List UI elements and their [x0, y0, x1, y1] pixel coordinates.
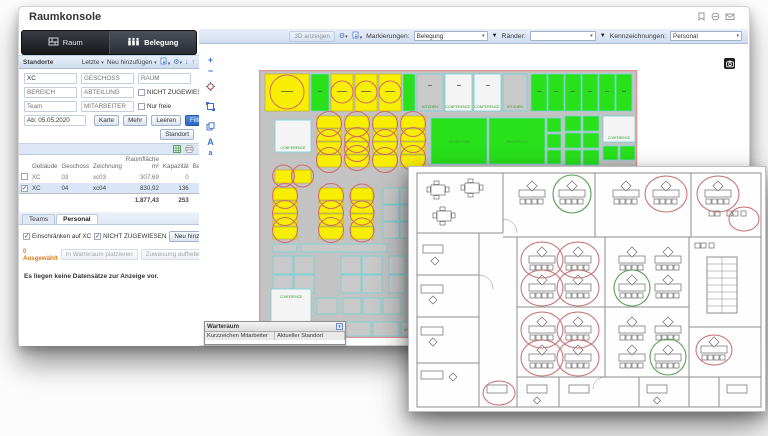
- nur-freie-checkbox[interactable]: [138, 103, 145, 110]
- row-checkbox[interactable]: [21, 173, 28, 180]
- center-target-icon[interactable]: [206, 78, 215, 96]
- table-row-selected[interactable]: ✓ XC 04 xc04 830,92 136: [19, 183, 199, 194]
- page-title: Raumkonsole: [29, 11, 101, 23]
- inset-furniture: [421, 179, 747, 404]
- zoom-in-icon[interactable]: +: [208, 56, 213, 65]
- room-label-conference: CONFERENCE: [280, 146, 306, 150]
- warteraum-platzieren-button[interactable]: In Warteraum platzieren: [61, 249, 138, 260]
- raum-input[interactable]: [138, 73, 191, 84]
- table-row[interactable]: XC 03 xc03 307,69 0: [19, 171, 199, 183]
- tab-belegung-label: Belegung: [144, 38, 178, 47]
- detail-floorplan-overlay[interactable]: [408, 166, 766, 412]
- geschoss-input[interactable]: [81, 73, 134, 84]
- minimize-icon[interactable]: ▾: [336, 323, 343, 330]
- team-input[interactable]: [24, 101, 77, 112]
- warteraum-col-kurzzeichen: Kurzzeichen Mitarbeiter: [205, 332, 275, 340]
- personal-nicht-zugewiesen-checkbox[interactable]: ✓: [94, 233, 101, 240]
- warteraum-title: Warteraum: [207, 323, 239, 330]
- gear-icon[interactable]: ⚙▾: [173, 58, 182, 66]
- nicht-zugewiesen-checkbox[interactable]: [138, 89, 145, 96]
- empty-message: Es liegen keine Datensätze zur Anzeige v…: [19, 265, 199, 288]
- einschraenken-label: Einschränken auf XC: [32, 233, 91, 240]
- tab-raum-label: Raum: [63, 38, 83, 47]
- rooms-band-2[interactable]: CONFERENCE RECEPTION: [275, 112, 635, 173]
- fit-view-icon[interactable]: [206, 98, 215, 116]
- room-label-reception: RECEPTION: [507, 140, 528, 144]
- window-header-icons: [697, 12, 735, 21]
- room-label-kitchen: KITCHEN: [422, 105, 438, 109]
- tab-raum[interactable]: Raum: [22, 31, 109, 54]
- nur-freie-label: Nur freie: [147, 103, 171, 110]
- selection-actions: 0 Ausgewählt In Warteraum platzieren Zuw…: [19, 245, 199, 265]
- filter-form: NICHT ZUGEWIESEN Nur freie Karte Mehr Le…: [19, 69, 199, 143]
- mail-icon[interactable]: [725, 12, 735, 21]
- selected-count: 0 Ausgewählt: [23, 248, 58, 262]
- copy-view-icon[interactable]: [206, 118, 215, 136]
- abteilung-input[interactable]: [81, 87, 134, 98]
- standort-button[interactable]: Standort: [160, 129, 194, 140]
- arrow-down-icon[interactable]: ↓: [185, 59, 189, 66]
- room-label-conference: CONFERENCE: [474, 105, 500, 109]
- markierungen-select[interactable]: Belegung▾: [414, 31, 488, 41]
- gebaeude-input[interactable]: [24, 73, 77, 84]
- bookmark-icon[interactable]: [697, 12, 706, 21]
- standorte-toolbar: Standorte Letzte ▾ Neu hinzufügen ▾ ▾ ⚙▾…: [19, 55, 199, 69]
- export-icon[interactable]: ▾: [352, 31, 363, 41]
- standorte-title: Standorte: [23, 59, 53, 66]
- tab-teams[interactable]: Teams: [22, 214, 55, 224]
- belegung-tab-icon: [127, 37, 140, 48]
- tab-personal[interactable]: Personal: [56, 214, 97, 224]
- raender-select[interactable]: ▾: [530, 31, 596, 41]
- arrow-up-icon[interactable]: ↑: [192, 59, 196, 66]
- warteraum-col-standort: Aktueller Standort: [275, 332, 345, 340]
- table-header-row: Gebäude Geschoss Zeichnung Raumflächem² …: [19, 155, 199, 171]
- einschraenken-checkbox[interactable]: ✓: [23, 233, 30, 240]
- excel-icon[interactable]: [173, 140, 181, 158]
- font-increase-icon[interactable]: A: [207, 138, 214, 147]
- kennzeichnungen-label: Kennzeichnungen:: [610, 33, 666, 40]
- 3d-anzeigen-button[interactable]: 3D anzeigen: [289, 31, 334, 42]
- markierungen-label: Markierungen:: [366, 33, 409, 40]
- room-label-conference: CONFERENCE: [445, 105, 471, 109]
- nicht-zugewiesen-label: NICHT ZUGEWIESEN: [147, 89, 199, 96]
- recent-dropdown[interactable]: Letzte ▾: [82, 59, 104, 66]
- table-sum-row: 1.877,43 253: [19, 194, 199, 206]
- kennzeichnungen-select[interactable]: Personal▾: [670, 31, 742, 41]
- bereich-input[interactable]: [24, 87, 77, 98]
- personal-nicht-zugewiesen-label: NICHT ZUGEWIESEN: [103, 233, 166, 240]
- left-panel: Raum Belegung Standorte Letzte ▾ Neu hin…: [19, 29, 199, 346]
- rooms-top-row[interactable]: KITCHEN CONFERENCE CONFERENCE KITCHEN: [265, 74, 632, 111]
- room-label-conference: CONFERENCE: [608, 136, 630, 140]
- mehr-button[interactable]: Mehr: [123, 115, 147, 126]
- occupied-room-group[interactable]: [273, 184, 375, 243]
- active-tab-pointer: [142, 56, 150, 60]
- room-label-kitchen: KITCHEN: [507, 105, 523, 109]
- zoom-out-icon[interactable]: −: [208, 67, 213, 76]
- gear-icon[interactable]: ⚙▾: [339, 32, 348, 40]
- room-label-conference: CONFERENCE: [280, 295, 302, 299]
- export-icon[interactable]: ▾: [160, 57, 171, 67]
- filter-funnel-icon[interactable]: ▼: [600, 33, 606, 39]
- row-checkbox[interactable]: ✓: [21, 185, 28, 192]
- room-label-reception: RECEPTION: [449, 140, 470, 144]
- warteraum-panel: Warteraum ▾ Kurzzeichen Mitarbeiter Aktu…: [204, 321, 346, 345]
- raum-tab-icon: [48, 37, 59, 48]
- table-actions-bar: [19, 143, 199, 155]
- font-decrease-icon[interactable]: a: [209, 149, 213, 158]
- neu-hinzufuegen-button[interactable]: Neu hinzufügen: [169, 231, 199, 242]
- zuweisung-aufheben-button[interactable]: Zuweisung aufheben: [141, 249, 199, 260]
- personal-controls: ✓Einschränken auf XC ✓NICHT ZUGEWIESEN N…: [19, 225, 199, 245]
- raender-label: Ränder:: [502, 33, 526, 40]
- printer-icon[interactable]: [185, 140, 194, 158]
- leeren-button[interactable]: Leeren: [151, 115, 181, 126]
- assignment-tabbar: Teams Personal: [19, 212, 199, 225]
- results-table: Gebäude Geschoss Zeichnung Raumflächem² …: [19, 155, 199, 206]
- camera-icon[interactable]: [724, 58, 735, 69]
- mode-tabbar: Raum Belegung: [21, 30, 197, 55]
- page: Raumkonsole Raum Belegung Standorte: [0, 0, 768, 436]
- mitarbeiter-input[interactable]: [81, 101, 134, 112]
- warteraum-body: [205, 340, 345, 344]
- filter-button[interactable]: Filter: [185, 115, 199, 126]
- filter-funnel-icon[interactable]: ▼: [492, 33, 498, 39]
- map-toolbar: 3D anzeigen ⚙▾ ▾ Markierungen: Belegung▾…: [199, 29, 748, 44]
- map-tools: + − A a: [206, 56, 215, 158]
- date-input[interactable]: [24, 115, 86, 126]
- karte-button[interactable]: Karte: [94, 115, 119, 126]
- print-icon[interactable]: [711, 12, 720, 21]
- tab-belegung[interactable]: Belegung: [109, 31, 197, 54]
